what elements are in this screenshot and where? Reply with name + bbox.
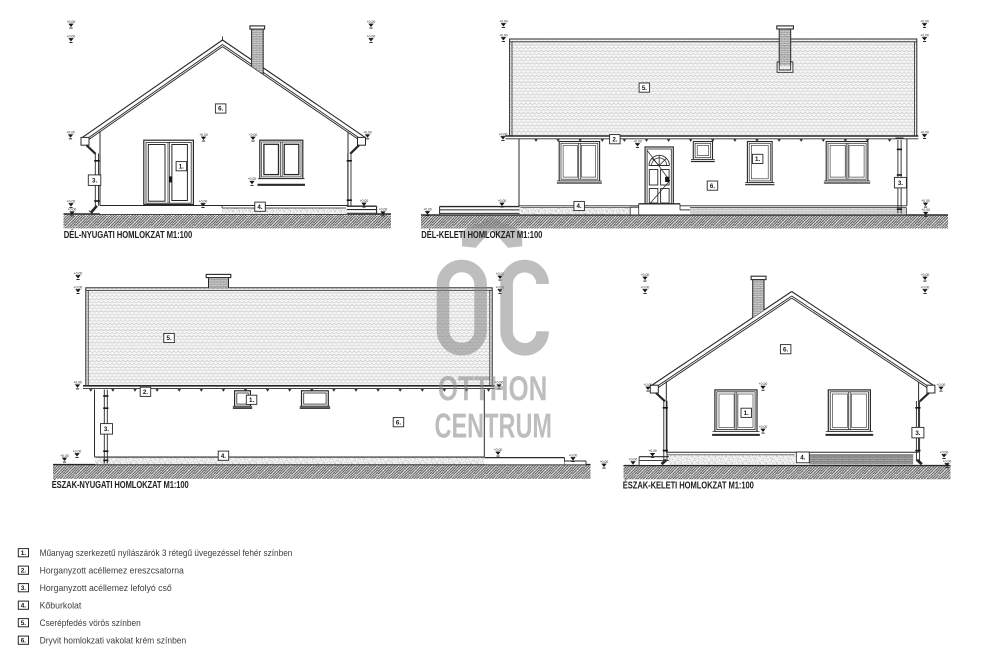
svg-text:OTTHON: OTTHON [438,370,548,408]
svg-text:2.: 2. [612,136,617,143]
svg-text:6.: 6. [21,638,27,645]
svg-text:2.: 2. [21,568,27,575]
svg-text:4.: 4. [257,204,262,211]
svg-text:6.: 6. [710,183,715,190]
svg-text:4.: 4. [800,455,805,462]
svg-text:CENTRUM: CENTRUM [435,408,552,446]
svg-text:Horganyzott acéllemez lefolyó: Horganyzott acéllemez lefolyó cső [40,583,172,593]
svg-text:1.: 1. [21,550,27,557]
svg-text:Kőburkolat: Kőburkolat [40,601,82,611]
svg-text:3.: 3. [898,180,903,187]
svg-text:Cserépfedés vörös színben: Cserépfedés vörös színben [40,618,141,628]
svg-text:1.: 1. [249,397,254,404]
svg-text:5.: 5. [21,620,27,627]
svg-text:2.: 2. [143,389,148,396]
svg-text:6.: 6. [783,346,788,353]
svg-text:3.: 3. [92,177,97,184]
svg-text:5.: 5. [167,335,172,342]
svg-text:3.: 3. [915,430,920,437]
svg-text:6.: 6. [218,106,223,113]
svg-text:4.: 4. [577,203,582,210]
svg-text:1.: 1. [755,156,760,163]
svg-text:DÉL-KELETI HOMLOKZAT M1:100: DÉL-KELETI HOMLOKZAT M1:100 [421,228,542,241]
svg-text:3.: 3. [104,426,109,433]
svg-text:Horganyzott acéllemez ereszcsa: Horganyzott acéllemez ereszcsatorna [40,566,185,576]
svg-text:DÉL-NYUGATI HOMLOKZAT M1:100: DÉL-NYUGATI HOMLOKZAT M1:100 [64,228,193,241]
svg-text:6.: 6. [396,419,401,426]
svg-text:ÉSZAK-NYUGATI HOMLOKZAT M1:100: ÉSZAK-NYUGATI HOMLOKZAT M1:100 [52,478,189,491]
svg-text:Műanyag szerkezetű nyílászárók: Műanyag szerkezetű nyílászárók 3 rétegű … [40,548,293,558]
svg-text:ÉSZAK-KELETI HOMLOKZAT M1:100: ÉSZAK-KELETI HOMLOKZAT M1:100 [623,478,754,491]
svg-text:4.: 4. [21,603,27,610]
svg-text:5.: 5. [642,85,647,92]
svg-text:4.: 4. [221,453,226,460]
svg-text:3.: 3. [21,585,27,592]
svg-text:1.: 1. [179,163,184,170]
svg-text:Dryvit homlokzati vakolat krém: Dryvit homlokzati vakolat krém színben [40,636,187,646]
svg-text:1.: 1. [744,410,749,417]
